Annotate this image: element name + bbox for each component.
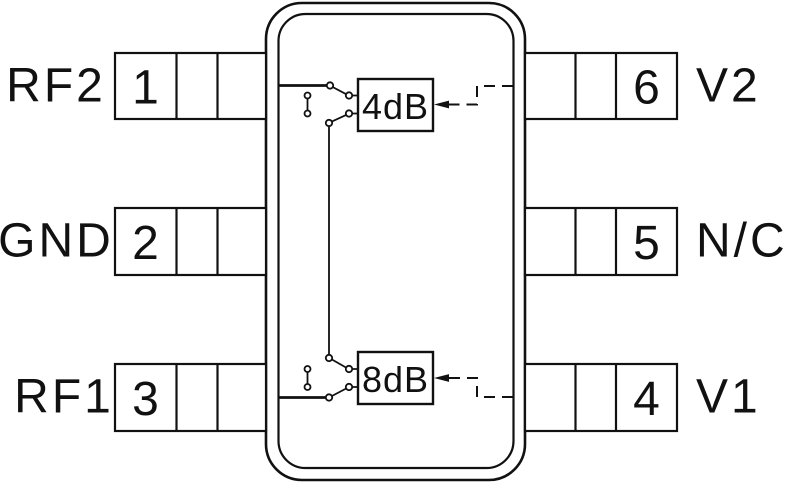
ic-diagram-canvas: RF2 1 GND 2 RF1 3 6 V2 5 N/C — [0, 0, 800, 484]
pin-6-label: V2 — [696, 60, 761, 113]
switch-blade-upper — [333, 87, 347, 94]
pin-4-number: 4 — [633, 373, 660, 426]
attenuator-stage-8db: 8dB — [279, 352, 513, 404]
switch-throw-contact — [346, 92, 352, 98]
pin-5-number: 5 — [633, 217, 660, 270]
pin-6-number: 6 — [633, 62, 660, 115]
pin-3-number: 3 — [132, 373, 159, 426]
switch-throw-contact — [346, 366, 352, 372]
package-outer-border — [266, 3, 525, 480]
pin-3: RF1 3 — [14, 364, 266, 431]
pin-5: 5 N/C — [525, 208, 788, 275]
pin-4: 4 V1 — [525, 364, 761, 431]
v1-control-arrowhead-icon — [434, 374, 449, 382]
pin-3-label: RF1 — [14, 371, 114, 424]
pin-6: 6 V2 — [525, 53, 761, 119]
switch-blade-upper — [332, 359, 347, 367]
v2-control-arrowhead-icon — [434, 101, 449, 109]
attenuator-4db-label: 4dB — [362, 86, 429, 127]
switch-pivot-contact — [326, 355, 332, 361]
pin-2: GND 2 — [0, 208, 266, 275]
attenuator-stage-4db: 4dB — [279, 79, 513, 131]
bypass-contact — [305, 366, 311, 372]
switch-pivot-contact — [327, 82, 333, 88]
pin-4-label: V1 — [696, 371, 761, 424]
switch-pivot-contact — [326, 394, 332, 400]
pin-1: RF2 1 — [6, 53, 266, 119]
v1-control-dashed-line — [456, 378, 513, 397]
pin-1-label: RF2 — [6, 60, 106, 113]
switch-blade-lower — [332, 389, 346, 397]
switch-blade-lower — [332, 115, 346, 122]
bypass-contact — [305, 111, 311, 117]
pin-2-number: 2 — [132, 217, 159, 270]
v2-control-dashed-line — [456, 86, 513, 105]
switch-throw-contact — [346, 110, 352, 116]
attenuator-8db-label: 8dB — [362, 359, 429, 400]
package-outline — [266, 3, 525, 480]
pin-5-label: N/C — [696, 215, 788, 268]
pin-2-label: GND — [0, 215, 114, 268]
switch-throw-contact — [346, 384, 352, 390]
bypass-contact — [305, 93, 311, 99]
pin-1-number: 1 — [132, 62, 159, 115]
switch-pivot-contact — [326, 120, 332, 126]
bypass-contact — [305, 384, 311, 390]
